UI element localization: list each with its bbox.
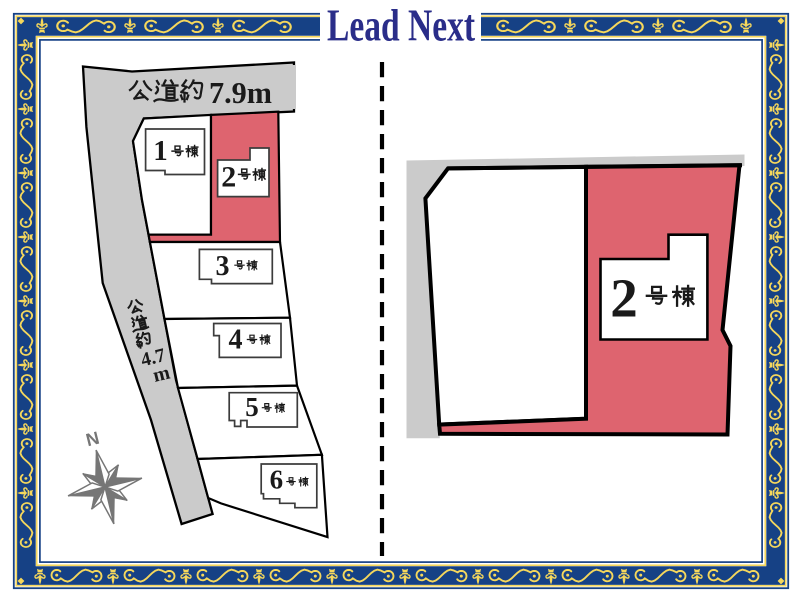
svg-text:4: 4 <box>229 325 243 356</box>
svg-text:5: 5 <box>245 392 259 422</box>
svg-text:Lead Next: Lead Next <box>327 1 475 51</box>
svg-text:3: 3 <box>216 251 230 282</box>
svg-text:2: 2 <box>610 267 638 328</box>
svg-text:6: 6 <box>270 465 284 495</box>
svg-text:1: 1 <box>153 135 168 167</box>
svg-text:7.9m: 7.9m <box>209 75 272 110</box>
svg-text:2: 2 <box>221 160 236 193</box>
